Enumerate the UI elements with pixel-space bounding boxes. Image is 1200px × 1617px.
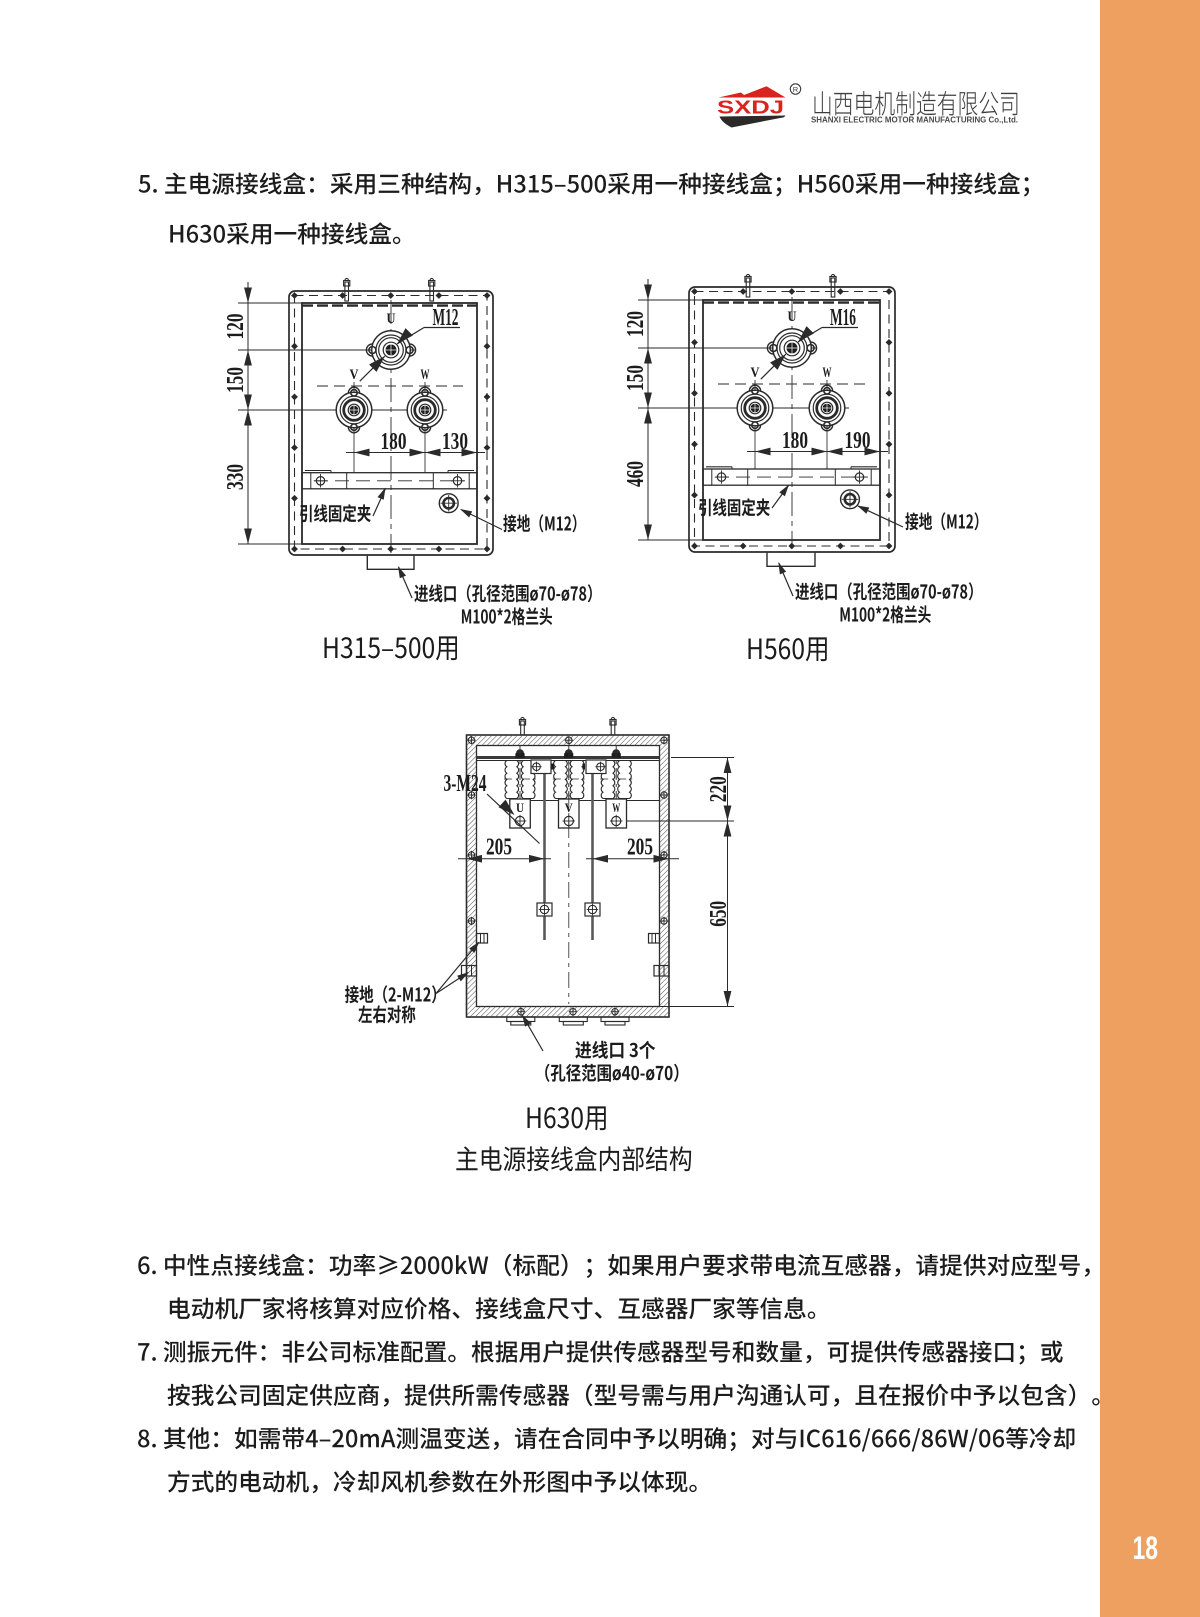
svg-text:U: U [788,309,797,325]
svg-text:SHANXI ELECTRIC MOTOR MANUFACT: SHANXI ELECTRIC MOTOR MANUFACTURING Co.,… [811,115,1018,124]
svg-text:460: 460 [623,461,649,487]
svg-text:V: V [350,367,359,383]
svg-text:W: W [612,800,620,815]
svg-text:V: V [751,365,760,381]
svg-text:130: 130 [442,429,468,455]
svg-text:U: U [387,311,396,327]
svg-text:3-M24: 3-M24 [444,771,487,797]
svg-text:W: W [823,365,832,381]
svg-text:180: 180 [381,429,407,455]
svg-text:150: 150 [623,365,649,391]
svg-text:650: 650 [706,901,732,927]
svg-text:120: 120 [223,314,249,340]
svg-text:18: 18 [1133,1530,1159,1566]
svg-text:205: 205 [627,835,653,861]
svg-text:330: 330 [223,464,249,490]
svg-text:M12: M12 [433,305,459,331]
svg-text:U: U [516,800,525,815]
svg-text:205: 205 [486,835,512,861]
svg-text:120: 120 [623,311,649,337]
svg-text:M16: M16 [830,305,856,331]
svg-text:150: 150 [223,367,249,393]
svg-text:W: W [421,367,430,383]
svg-text:220: 220 [706,776,732,802]
svg-text:SXDJ: SXDJ [717,97,784,118]
svg-text:180: 180 [782,428,808,454]
svg-text:190: 190 [845,428,871,454]
svg-text:R: R [793,85,799,94]
